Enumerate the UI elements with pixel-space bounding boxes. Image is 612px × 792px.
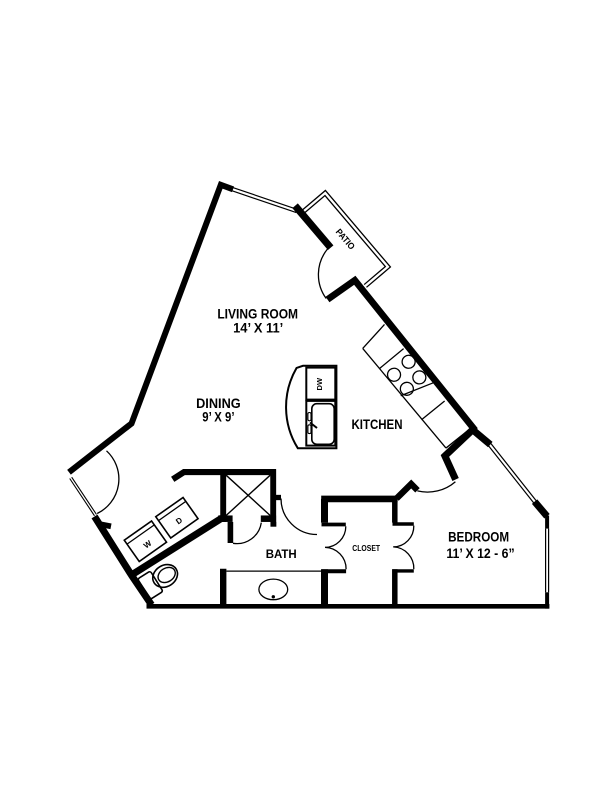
svg-text:14’ X 11’: 14’ X 11’ <box>233 320 283 335</box>
svg-text:9’ X 9’: 9’ X 9’ <box>202 410 234 425</box>
svg-text:KITCHEN: KITCHEN <box>352 417 403 432</box>
svg-text:11’ X 12 - 6”: 11’ X 12 - 6” <box>446 546 514 561</box>
svg-text:LIVING ROOM: LIVING ROOM <box>217 306 298 321</box>
svg-text:BATH: BATH <box>266 547 297 561</box>
svg-text:BEDROOM: BEDROOM <box>448 529 509 544</box>
svg-text:CLOSET: CLOSET <box>352 544 380 553</box>
svg-text:DW: DW <box>315 377 324 391</box>
